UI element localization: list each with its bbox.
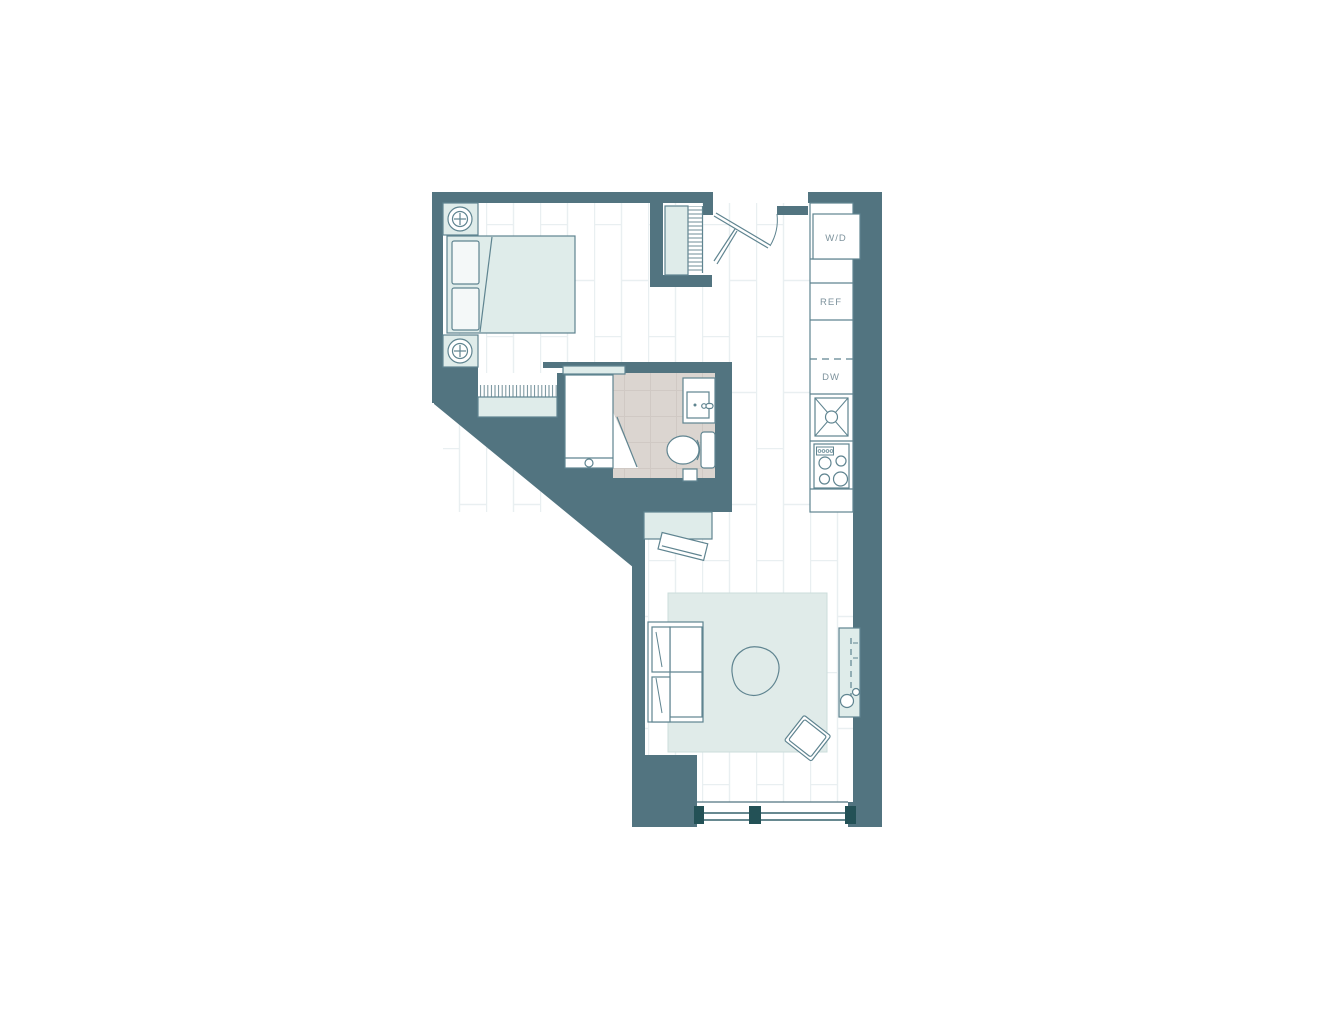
lamp-icon xyxy=(853,689,860,696)
bathroom-sliding-door xyxy=(565,375,613,468)
toilet-bowl xyxy=(667,436,699,464)
wall-entry-closet-left xyxy=(650,203,663,287)
floor-plan-svg: W/D REF DW xyxy=(0,0,1336,1032)
bathroom-niche xyxy=(683,469,697,481)
dishwasher-label: DW xyxy=(822,372,840,383)
pillow xyxy=(452,288,479,330)
wall-living-left xyxy=(632,560,645,755)
kitchen: W/D REF DW xyxy=(810,203,860,512)
wall-top-left xyxy=(432,192,713,203)
wall-entry-jamb xyxy=(703,203,713,215)
bedroom-closet xyxy=(478,373,557,417)
window-alcove-floor xyxy=(697,802,848,827)
refrigerator-label: REF xyxy=(820,297,842,308)
pillow xyxy=(452,241,479,284)
washer-dryer-label: W/D xyxy=(825,233,846,244)
entry-closet-hangers xyxy=(688,206,702,273)
window-mullion xyxy=(749,806,761,824)
wall-window-block-left xyxy=(632,755,697,827)
sofa-back-cushion xyxy=(652,677,670,722)
floor-plan-page: W/D REF DW xyxy=(0,0,1336,1032)
console-desk xyxy=(839,628,860,717)
sofa xyxy=(648,622,703,722)
bathroom xyxy=(563,366,715,481)
toilet-tank xyxy=(701,432,715,468)
wall-entry-closet-bottom xyxy=(650,275,712,287)
wall-right xyxy=(853,192,882,827)
side-table xyxy=(644,512,712,539)
sofa-back-cushion xyxy=(652,627,670,672)
window-mullion xyxy=(694,806,704,824)
window-mullion xyxy=(845,806,856,824)
stove xyxy=(814,444,849,488)
wall-bathroom-top xyxy=(612,362,732,373)
entry-closet-wardrobe xyxy=(665,206,688,275)
door-handle-icon xyxy=(585,459,593,467)
bedroom-closet-hangers xyxy=(478,385,557,397)
lamp-icon xyxy=(841,695,854,708)
kitchen-sink xyxy=(815,398,848,436)
bathroom-vanity xyxy=(683,378,715,423)
drain-icon xyxy=(826,411,838,423)
bathroom-door-rail xyxy=(563,366,625,374)
bed xyxy=(447,236,575,333)
nightstand-top xyxy=(443,203,478,235)
wall-entry-ledge xyxy=(777,206,808,215)
bedroom-closet-shelf xyxy=(478,397,557,417)
nightstand-bottom xyxy=(443,335,478,367)
